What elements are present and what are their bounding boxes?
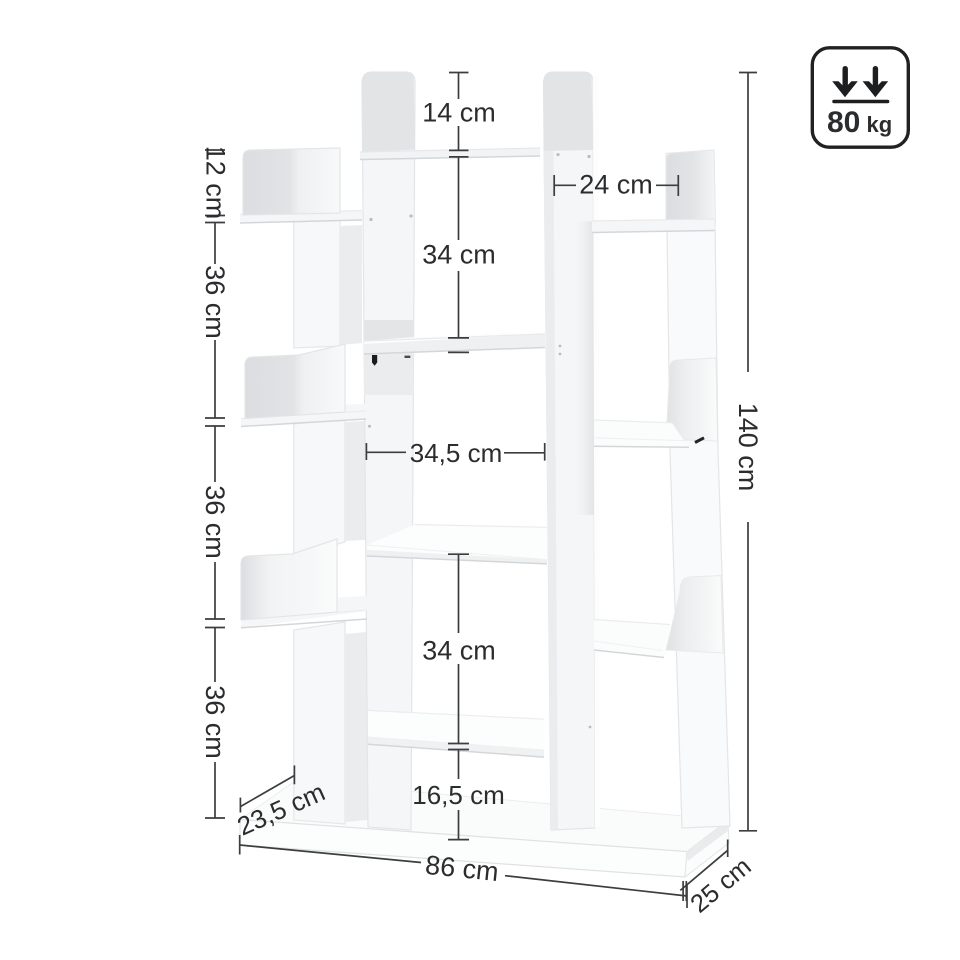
svg-text:36 cm: 36 cm — [200, 485, 230, 559]
svg-text:16,5 cm: 16,5 cm — [412, 780, 505, 810]
svg-text:80: 80 — [827, 106, 860, 139]
svg-text:kg: kg — [867, 112, 893, 137]
svg-text:34,5 cm: 34,5 cm — [410, 438, 503, 468]
svg-text:14 cm: 14 cm — [422, 98, 496, 128]
svg-text:24 cm: 24 cm — [579, 170, 653, 200]
svg-text:12 cm: 12 cm — [201, 146, 231, 220]
svg-text:34 cm: 34 cm — [422, 636, 496, 666]
svg-text:34 cm: 34 cm — [422, 240, 496, 270]
svg-text:140 cm: 140 cm — [733, 403, 763, 492]
svg-text:36 cm: 36 cm — [200, 685, 230, 759]
svg-text:36 cm: 36 cm — [200, 265, 230, 339]
